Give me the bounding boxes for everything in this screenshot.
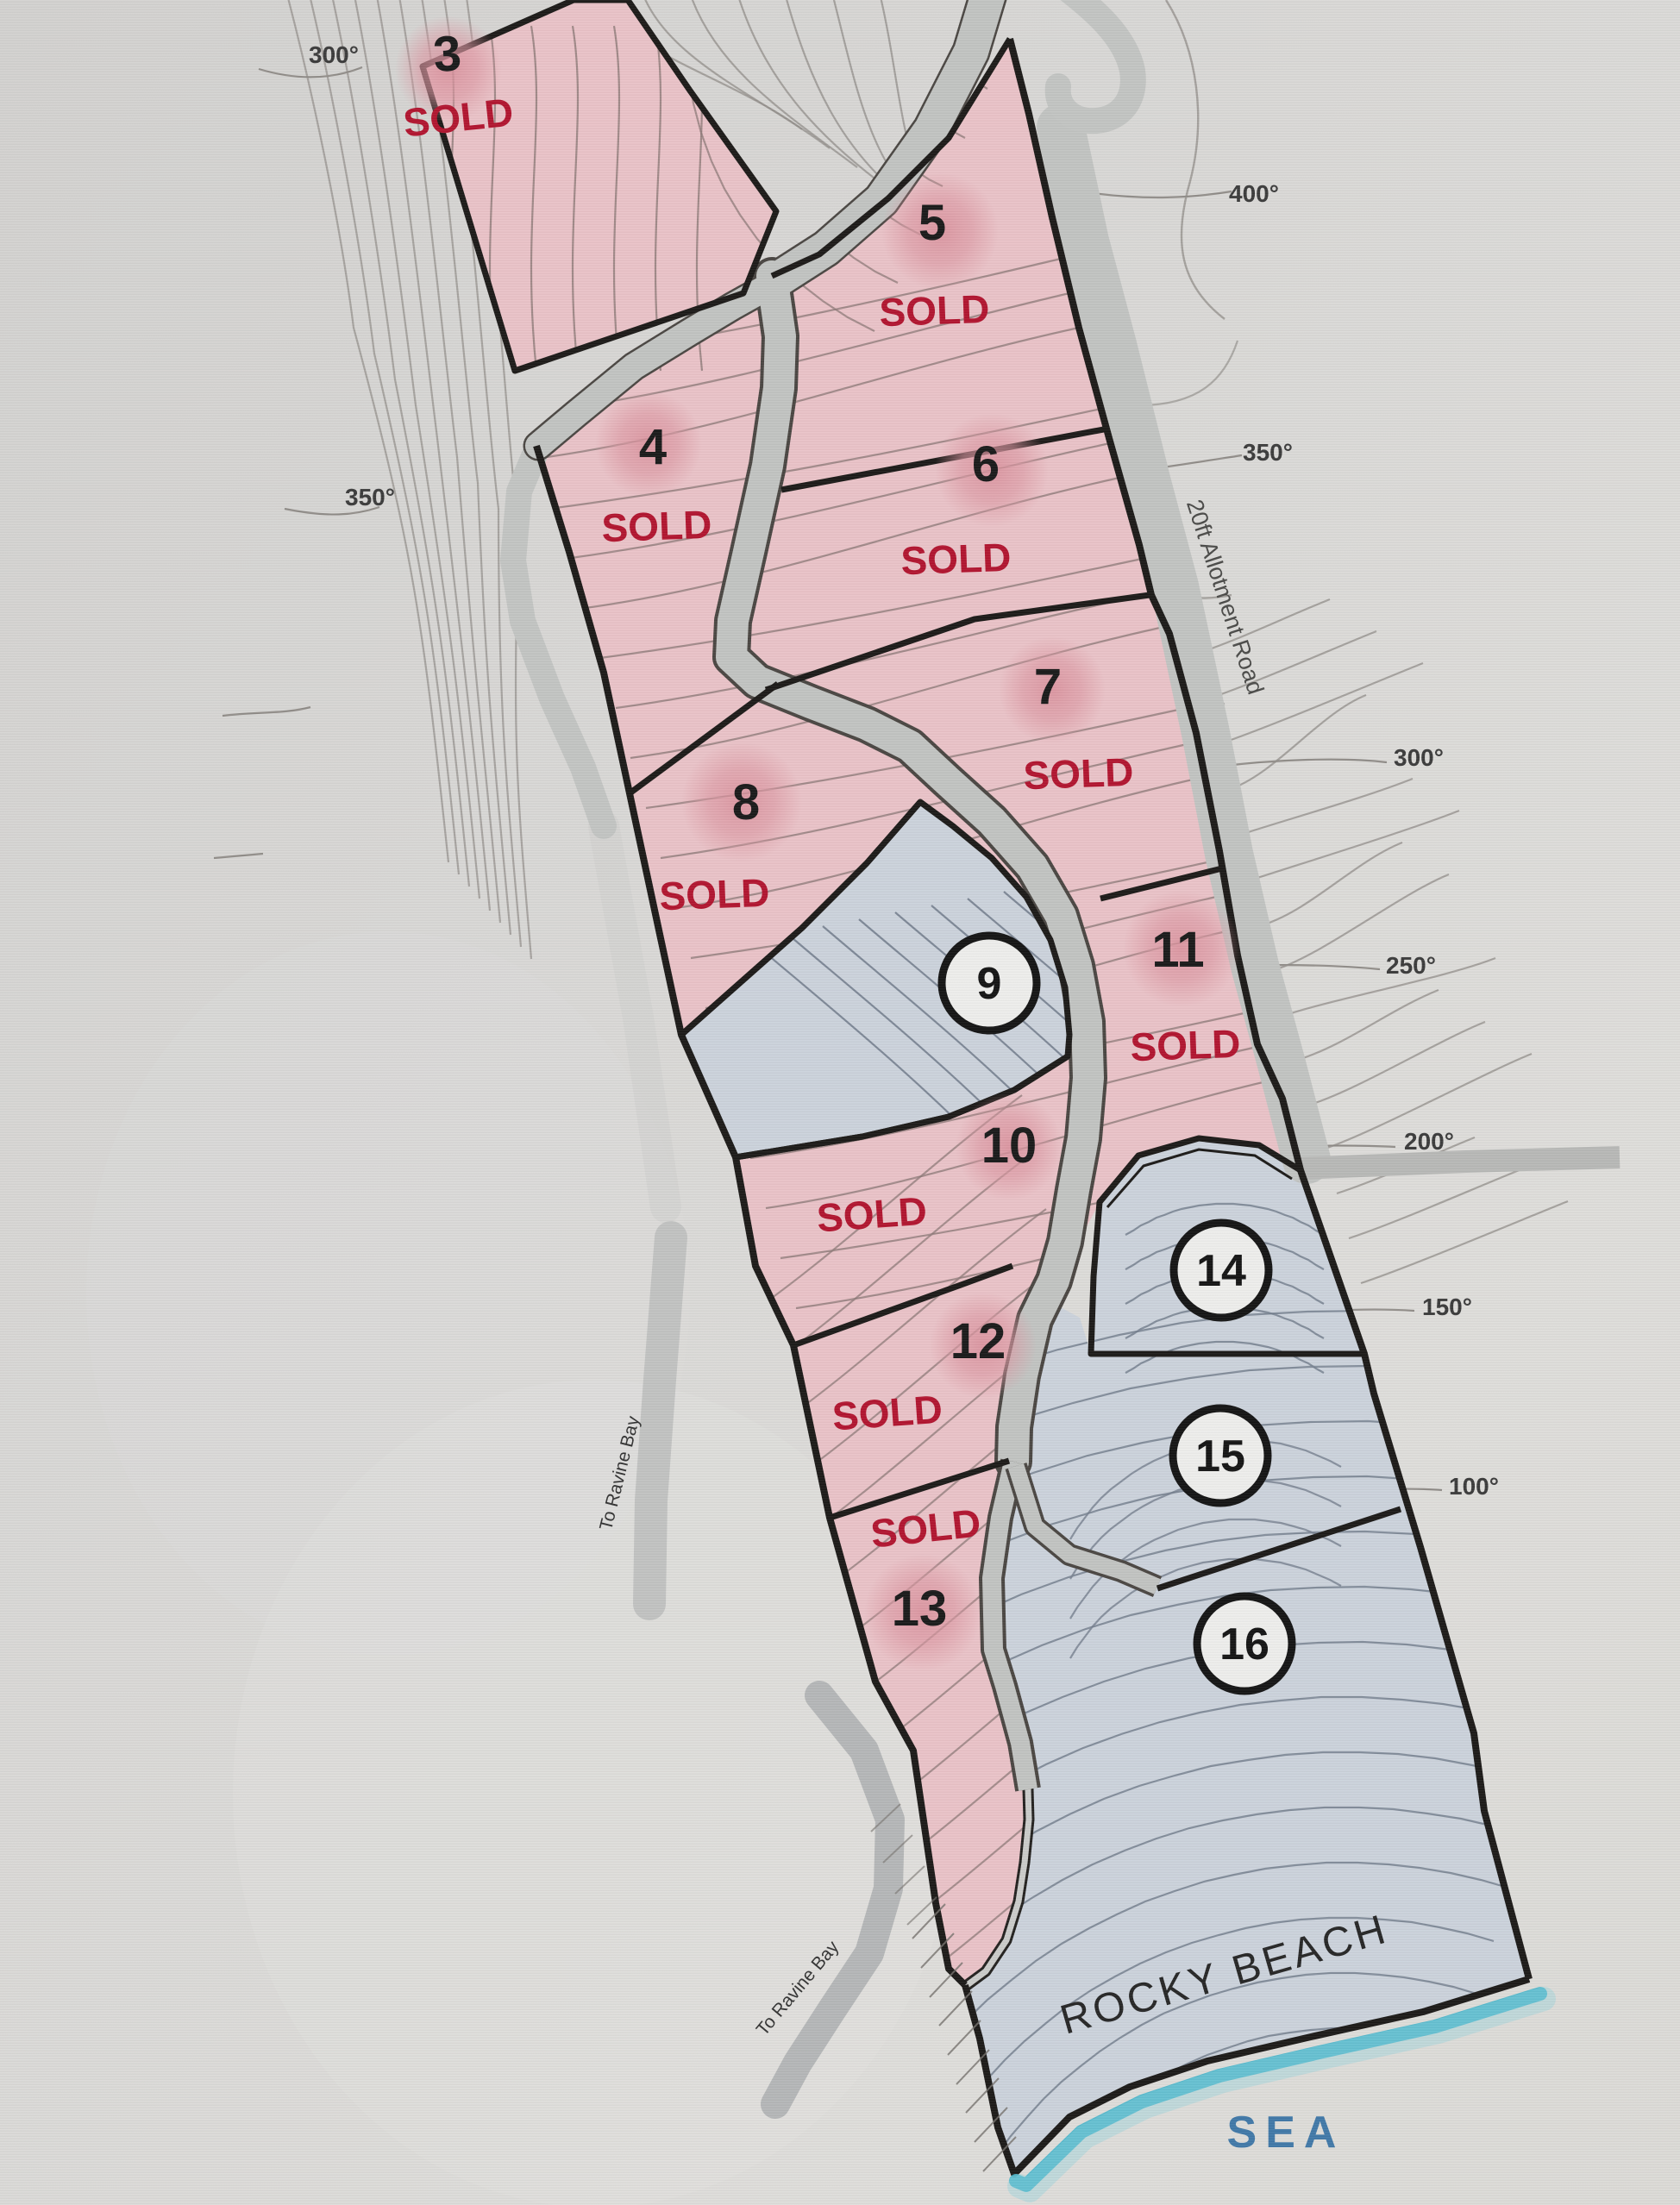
svg-text:SOLD: SOLD (815, 1188, 928, 1241)
svg-text:150°: 150° (1422, 1294, 1472, 1320)
svg-text:400°: 400° (1229, 180, 1279, 207)
svg-text:9: 9 (977, 959, 1002, 1009)
svg-text:5: 5 (918, 195, 946, 251)
svg-text:10: 10 (981, 1118, 1037, 1174)
svg-text:8: 8 (732, 774, 760, 830)
svg-text:SOLD: SOLD (1023, 749, 1135, 798)
svg-text:300°: 300° (309, 41, 359, 68)
svg-text:SOLD: SOLD (1130, 1021, 1242, 1069)
svg-text:7: 7 (1034, 659, 1062, 715)
svg-text:11: 11 (1151, 922, 1204, 978)
svg-text:12: 12 (950, 1313, 1006, 1369)
svg-text:200°: 200° (1404, 1128, 1454, 1155)
svg-text:300°: 300° (1394, 744, 1444, 771)
svg-text:SOLD: SOLD (659, 870, 771, 918)
svg-text:16: 16 (1219, 1619, 1269, 1669)
svg-text:SOLD: SOLD (601, 502, 713, 550)
svg-text:350°: 350° (345, 484, 395, 511)
svg-text:350°: 350° (1243, 439, 1293, 466)
svg-text:15: 15 (1195, 1431, 1245, 1481)
svg-text:SOLD: SOLD (879, 286, 991, 335)
svg-text:100°: 100° (1449, 1473, 1499, 1500)
svg-text:SEA: SEA (1227, 2108, 1345, 2158)
svg-text:6: 6 (972, 436, 1000, 492)
svg-text:14: 14 (1196, 1246, 1246, 1296)
svg-text:SOLD: SOLD (831, 1387, 943, 1439)
svg-text:4: 4 (639, 419, 667, 475)
svg-text:250°: 250° (1386, 952, 1436, 979)
svg-text:13: 13 (892, 1581, 948, 1637)
svg-text:SOLD: SOLD (900, 535, 1012, 583)
svg-text:3: 3 (431, 25, 463, 83)
